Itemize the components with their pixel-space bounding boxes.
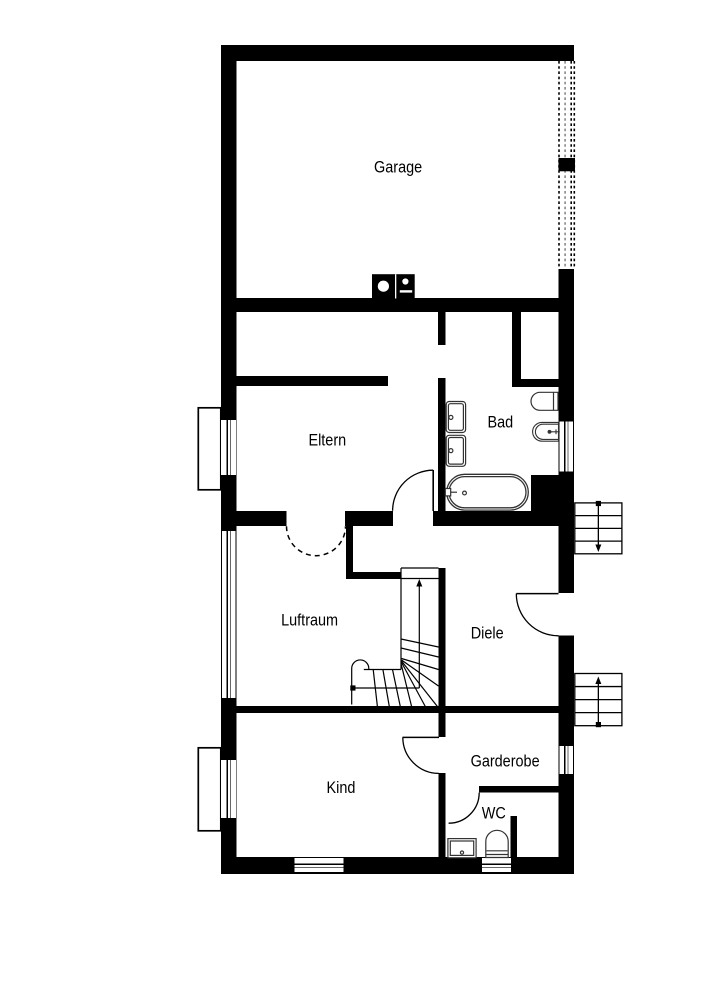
svg-text:Garderobe: Garderobe [471,752,540,770]
svg-text:Garage: Garage [374,158,422,176]
svg-text:Eltern: Eltern [308,431,346,449]
svg-text:Diele: Diele [471,624,504,642]
svg-text:Luftraum: Luftraum [281,611,338,629]
svg-text:Bad: Bad [487,413,513,431]
svg-text:Kind: Kind [327,779,356,797]
svg-text:WC: WC [482,804,506,822]
